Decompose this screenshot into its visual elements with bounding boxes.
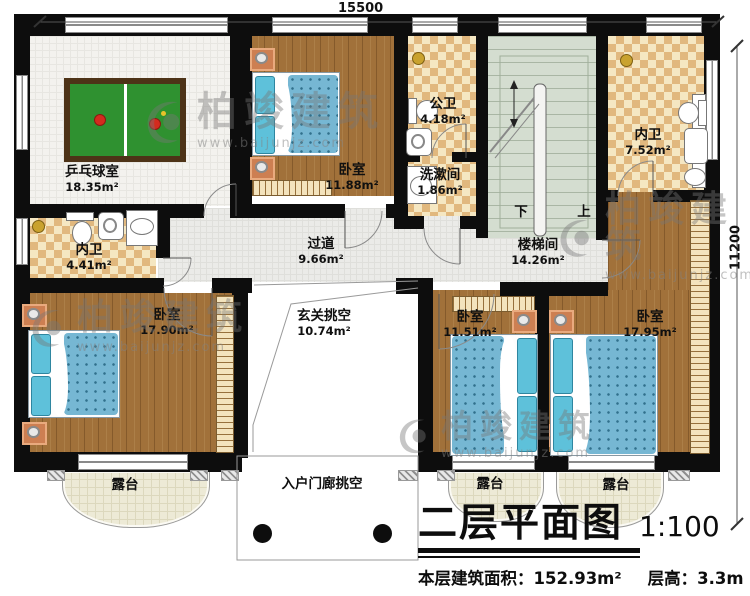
wall-ensuite-left-bottom-a [14,278,164,293]
label-hallway: 过道 9.66m² [298,237,343,266]
wardrobe-bedroom-left [216,295,234,453]
wall-washroom-bottom-a [394,216,424,229]
toilet-tank-icon [66,212,94,221]
wall-bath-mid-b [452,152,478,162]
window-top-4 [498,17,587,33]
bed-pillow [517,338,537,394]
room-area: 17.95m² [623,326,676,339]
window-top-1 [65,17,228,33]
room-area: 10.74m² [297,325,351,338]
window-top-5 [646,17,702,33]
dimension-top: 15500 [338,1,383,16]
nightstand [250,48,275,71]
title-block: 二层平面图 1:100 本层建筑面积：152.93m² 层高：3.3m [418,503,744,589]
room-name: 内卫 [66,243,111,259]
terrace-door-left [78,454,188,470]
room-area: 17.90m² [140,324,193,337]
label-foyer-void: 玄关挑空 10.74m² [297,309,351,338]
toilet-tank-icon [698,100,707,126]
room-name: 露台 [112,478,139,494]
paddle-icon [94,114,106,126]
nightstand [549,310,574,333]
bed-pillow [517,396,537,452]
room-area: 1.86m² [417,184,462,197]
wall-pingpong-bedroom [230,30,252,218]
room-area: 18.35m² [65,181,119,194]
shower-icon [32,220,45,233]
terrace-door-mid [452,454,535,470]
bathtub-icon [684,128,708,164]
label-washroom: 洗漱间 1.86m² [417,168,462,197]
stairs-up-label: 上 [577,205,591,221]
pilaster-6 [668,470,690,481]
bed-mattress [64,333,118,415]
wall-bedroom-left-east [232,278,248,458]
shower-icon [412,52,425,65]
room-name: 卧室 [623,310,676,326]
room-area: 11.88m² [325,179,378,192]
wall-bath-west [394,14,408,229]
label-ensuite-left: 内卫 4.41m² [66,243,111,272]
wall-pingpong-bottom-nub [188,204,204,218]
room-area: 4.18m² [420,113,465,126]
washer-icon [98,212,124,240]
paddle-icon [149,118,161,130]
sink-icon [684,168,706,186]
pilaster-1 [47,470,65,481]
stairs-down-label: 下 [514,205,528,221]
label-bedroom-mid: 卧室 11.51m² [443,310,496,339]
bed-mattress [288,75,338,153]
label-bedroom-top: 卧室 11.88m² [325,163,378,192]
nightstand [250,157,275,180]
porch-column [373,524,392,543]
nightstand [22,304,47,327]
washer-icon [406,128,432,156]
label-porch-void: 入户门廊挑空 [282,477,363,493]
plan-scale: 1:100 [639,510,720,543]
label-stairs-up: 上 [577,205,591,221]
window-left-1 [16,75,28,150]
room-name: 楼梯间 [511,238,564,254]
label-public-bath: 公卫 4.18m² [420,97,465,126]
terrace-door-right [568,454,655,470]
label-terrace-left: 露台 [112,478,139,494]
wall-stairs-west [476,14,488,238]
room-name: 洗漱间 [417,168,462,184]
label-stairs-down: 下 [514,205,528,221]
plan-title: 二层平面图 [418,503,623,546]
bed-pillow [553,338,573,394]
label-ensuite-right: 内卫 7.52m² [625,128,670,157]
bed-pillow [553,396,573,452]
room-name: 公卫 [420,97,465,113]
window-left-2 [16,218,28,265]
label-terrace-right: 露台 [603,478,630,494]
shower-icon [620,54,633,67]
wall-stairs-east [596,14,608,240]
dimension-right: 11200 [729,220,744,276]
porch-column [253,524,272,543]
label-terrace-mid: 露台 [477,477,504,493]
window-top-3 [412,17,458,33]
bed-mattress [586,336,656,454]
wardrobe-bedroom-right [690,200,710,454]
room-name: 内卫 [625,128,670,144]
wall-ensuite-left-east [156,218,170,258]
bed-pillow [255,76,275,114]
label-stairwell: 楼梯间 14.26m² [511,238,564,267]
nightstand [22,422,47,445]
room-name: 玄关挑空 [297,309,351,325]
pilaster-5 [437,470,455,481]
floor-height-text: 层高：3.3m [648,565,744,589]
room-area: 14.26m² [511,254,564,267]
room-name: 入户门廊挑空 [282,477,363,493]
room-name: 过道 [298,237,343,253]
window-top-2 [272,17,368,33]
bed-mattress [452,336,504,454]
wall-bedroom-top-bottom-a [252,204,345,218]
room-area: 9.66m² [298,253,343,266]
pilaster-4 [398,470,418,481]
ping-pong-table [64,78,186,162]
wall-bedroom-mid-west [418,282,433,458]
toilet-icon [678,102,699,124]
bed-pillow [31,334,51,374]
wall-ensuite-right-bottom-a [606,190,618,202]
floor-area-text: 本层建筑面积：152.93m² [418,565,622,589]
room-name: 卧室 [325,163,378,179]
wall-hall-bedrooms [500,282,608,296]
title-underline [418,548,640,558]
ball-icon [161,111,166,116]
room-name: 卧室 [443,310,496,326]
room-name: 卧室 [140,308,193,324]
porch-wall-opening [242,452,418,472]
sink-icon [130,218,154,235]
pilaster-3 [221,470,239,481]
nightstand [512,310,537,333]
bed-pillow [31,376,51,416]
room-area: 7.52m² [625,144,670,157]
wardrobe-bedroom-top [252,180,332,196]
ping-pong-net [124,84,127,156]
floor-plan-canvas: 乒乓球室 18.35m² 卧室 11.88m² 公卫 4.18m² 洗漱间 1.… [0,0,750,596]
room-name: 露台 [603,478,630,494]
label-bedroom-right: 卧室 17.95m² [623,310,676,339]
label-table-tennis: 乒乓球室 18.35m² [65,165,119,194]
label-bedroom-left: 卧室 17.90m² [140,308,193,337]
room-name: 露台 [477,477,504,493]
room-area: 11.51m² [443,326,496,339]
bed-pillow [255,116,275,154]
room-area: 4.41m² [66,259,111,272]
room-name: 乒乓球室 [65,165,119,181]
pilaster-2 [190,470,208,481]
